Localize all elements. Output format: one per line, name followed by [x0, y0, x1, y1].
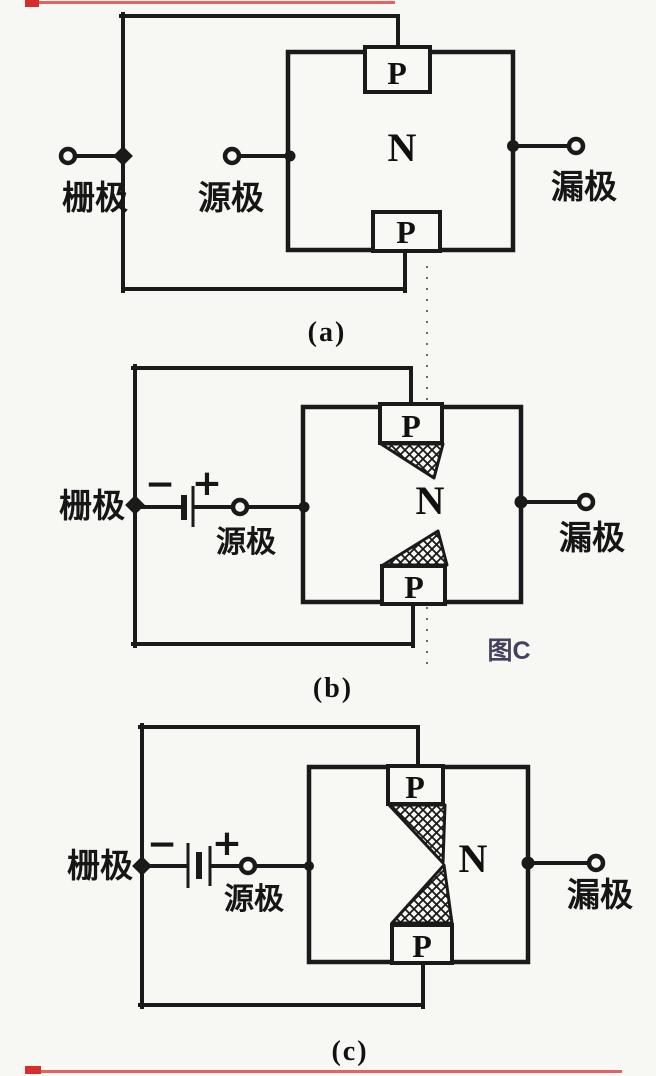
- figure-note: 图C: [487, 637, 530, 665]
- red-square-bottom-left: [25, 1066, 41, 1074]
- gate-terminal-icon: [61, 149, 75, 163]
- source-junction-dot: [299, 502, 310, 513]
- caption-a: (a): [308, 317, 347, 348]
- drain-label: 漏极: [567, 876, 633, 913]
- drain-terminal-icon: [589, 856, 603, 870]
- n-channel-label: N: [416, 478, 445, 523]
- gate-label: 栅极: [62, 179, 128, 216]
- battery-plus-sign: +: [192, 463, 222, 504]
- p-top-label: P: [405, 769, 425, 805]
- source-junction-dot: [285, 151, 296, 162]
- drain-label: 漏极: [559, 519, 625, 556]
- p-bottom-label: P: [396, 214, 416, 250]
- source-label: 源极: [216, 526, 276, 559]
- red-line-top: [25, 1, 395, 4]
- n-channel-label: N: [459, 836, 488, 881]
- p-top-label: P: [387, 55, 407, 91]
- red-square-top-left: [25, 0, 39, 7]
- battery-minus-sign: −: [147, 824, 177, 865]
- red-line-bottom: [25, 1070, 622, 1073]
- source-label: 源极: [198, 179, 264, 216]
- drain-junction-dot: [522, 857, 535, 870]
- source-terminal-icon: [233, 500, 247, 514]
- gate-label: 栅极: [67, 847, 133, 884]
- drain-label: 漏极: [551, 168, 617, 205]
- drain-terminal-icon: [569, 139, 583, 153]
- scanned-page: 栅极 源极 漏极 N P P (a) − +: [0, 0, 656, 1076]
- gate-label: 栅极: [59, 487, 125, 524]
- drain-terminal-icon: [579, 495, 593, 509]
- source-junction-dot: [304, 861, 314, 871]
- source-terminal-icon: [225, 149, 239, 163]
- battery-minus-sign: −: [145, 464, 175, 505]
- battery-plus-sign: +: [212, 823, 242, 864]
- source-terminal-icon: [241, 859, 255, 873]
- p-bottom-label: P: [412, 928, 432, 964]
- caption-c: (c): [331, 1036, 368, 1067]
- p-bottom-label: P: [404, 569, 424, 605]
- caption-b: (b): [313, 673, 353, 704]
- n-channel-label: N: [388, 125, 417, 170]
- drain-junction-dot: [515, 496, 528, 509]
- p-top-label: P: [401, 408, 421, 444]
- source-label: 源极: [224, 883, 284, 916]
- jfet-structure-diagram: 栅极 源极 漏极 N P P (a) − +: [0, 0, 656, 1076]
- drain-junction-dot: [507, 140, 519, 152]
